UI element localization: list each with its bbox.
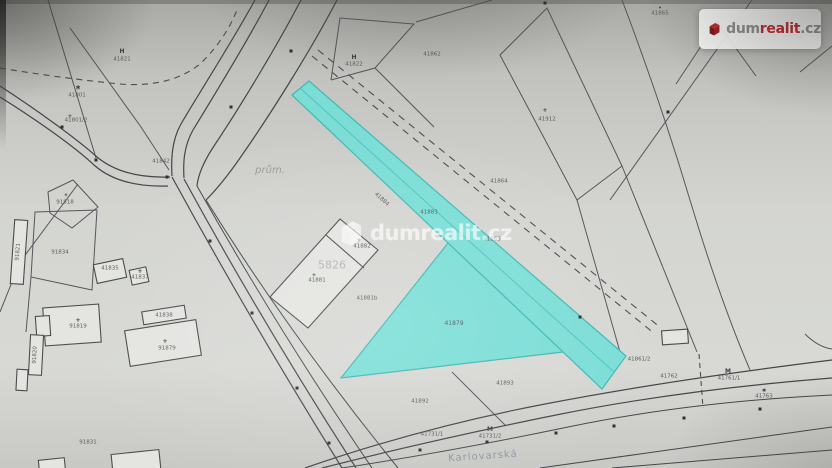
parcel-label: 41864 [490,179,508,185]
logo-text-suffix: .cz [800,21,821,37]
map-symbol: + [137,269,142,275]
logo-text-mid: realit [760,21,800,37]
parcel-label: 41837 [131,275,149,281]
parcel-label: 41865 [651,11,669,17]
parcel-label: 41838 [155,313,173,319]
parcel-label: 41884 [373,192,390,208]
map-symbol: + [542,108,547,114]
parcel-label: 41882 [353,244,371,250]
cadastral-map-photo: 418214180141801/241822418624186541912prů… [0,0,832,468]
logo-text-prefix: dum [726,21,760,37]
house-logo-icon [708,15,721,43]
parcel-label: 91820 [33,346,39,364]
parcel-label: 41835 [101,266,119,272]
parcel-label: 41881b [357,296,378,302]
parcel-label: 41731/1 [421,432,444,438]
parcel-label: 41842 [152,159,170,165]
map-symbol: + [68,115,72,120]
parcel-label: 91879 [158,346,176,352]
dumrealit-logo: dumrealit.cz [699,9,821,49]
map-symbol: + [312,274,316,279]
map-symbol: + [357,239,361,244]
map-symbol: H [351,55,356,61]
parcel-label: 41761/1 [718,376,741,382]
map-symbol: ∗ [761,388,766,394]
parcel-label: prům. [255,166,285,176]
parcel-label: 41893 [496,381,514,387]
parcel-label: 91818 [56,200,74,206]
parcel-label: 41731/2 [479,434,502,440]
parcel-label: 41912 [538,117,556,123]
parcel-label: 91821 [15,243,22,261]
logo-text: dumrealit.cz [726,21,821,37]
parcel-label: 41879 [444,321,463,327]
parcel-label: 41821 [113,57,131,63]
map-symbol: + [162,339,167,345]
parcel-label: 41762 [660,374,678,380]
parcel-label: 41883 [420,210,438,216]
parcel-label: 41892 [411,399,429,405]
map-symbol: H [119,49,124,55]
parcel-label: 91834 [51,250,69,256]
parcel-label: 91831 [79,440,97,446]
map-symbol: M [487,427,493,433]
parcel-label: 41861/2 [628,357,651,363]
street-label: Karlovarská [448,450,518,465]
parcel-label: 41881 [308,278,326,284]
map-symbol: + [75,318,80,324]
map-symbol: + [64,194,68,199]
parcel-labels-layer: 418214180141801/241822418624186541912prů… [0,0,832,468]
map-symbol: ∗ [75,85,81,92]
parcel-label: 41801 [68,93,86,99]
parcel-label: 41822 [345,62,363,68]
map-symbol: • [658,7,661,12]
map-symbol: M [725,369,731,375]
parcel-label: 41862 [423,52,441,58]
parcel-label: 5826 [318,260,346,271]
parcel-label: 91819 [69,324,87,330]
parcel-label: 41863 [483,237,501,243]
parcel-label: 41763 [755,394,773,400]
